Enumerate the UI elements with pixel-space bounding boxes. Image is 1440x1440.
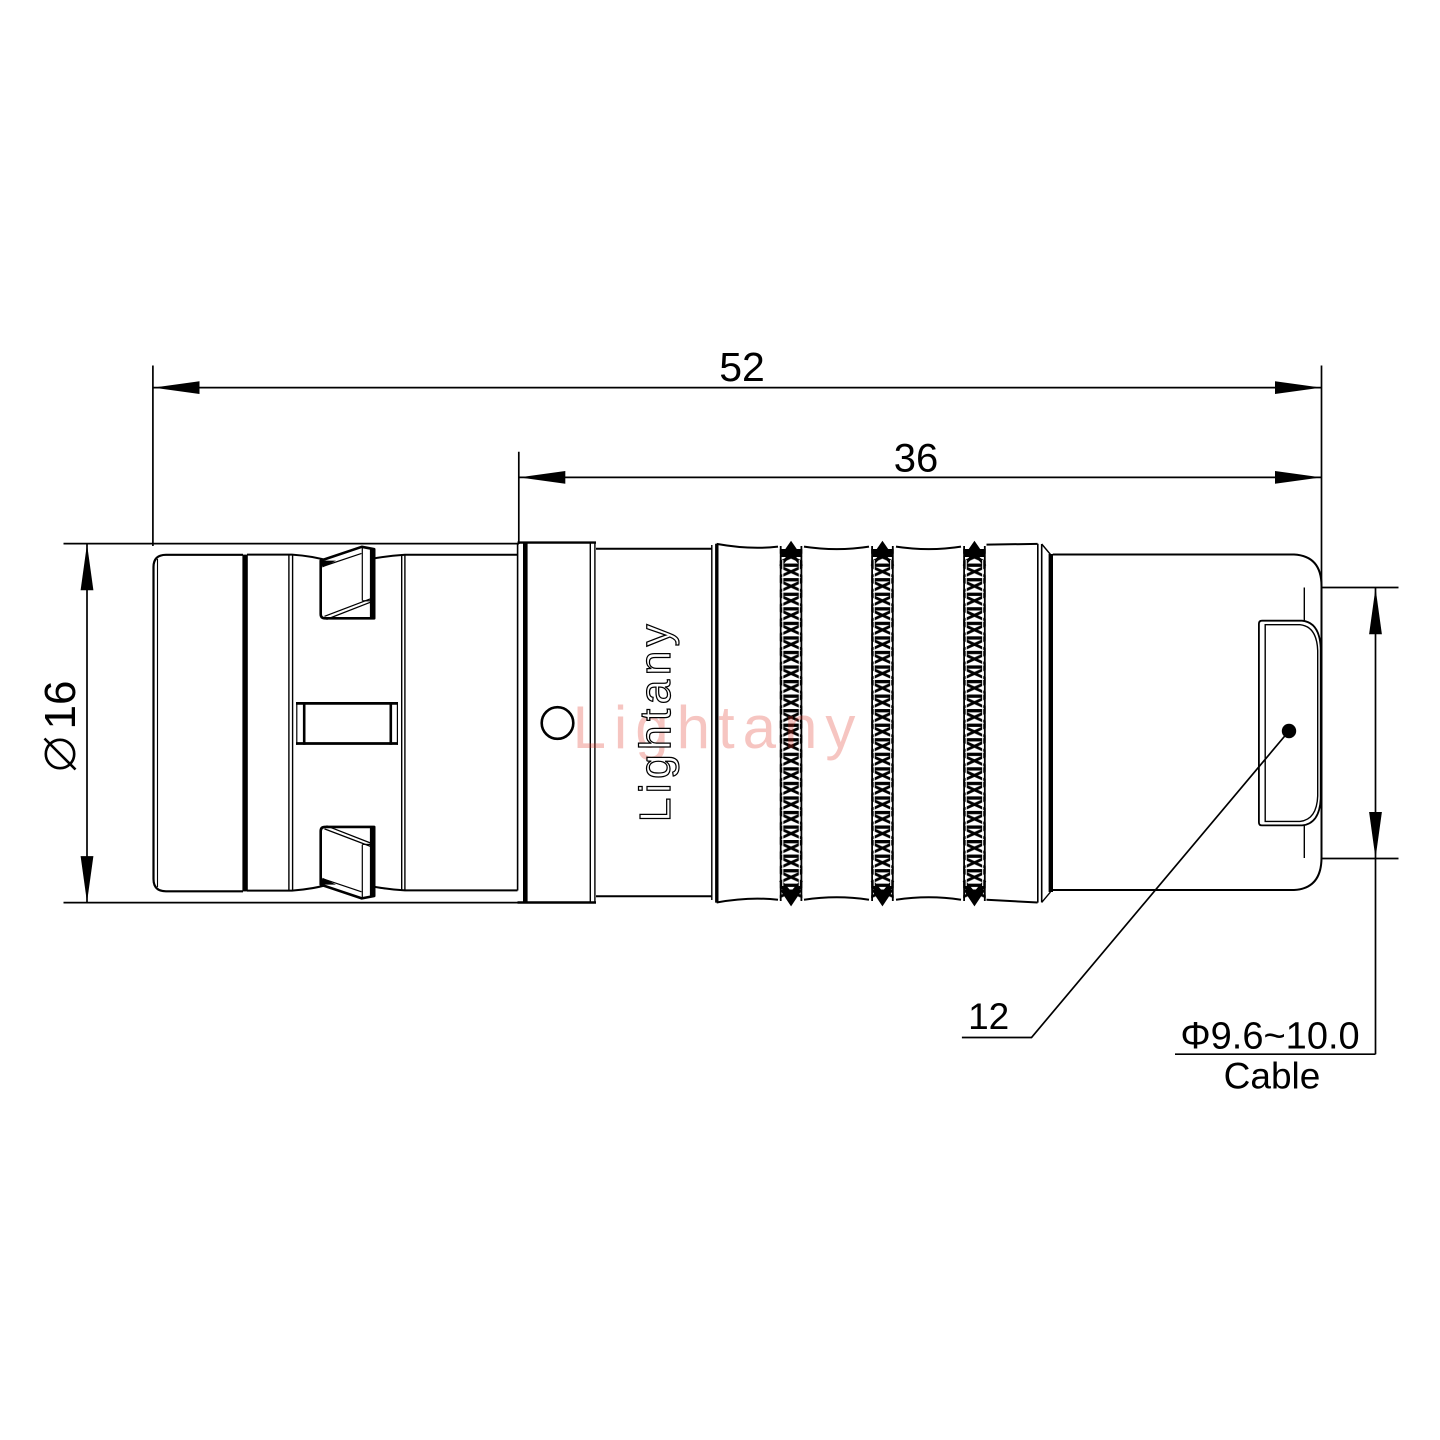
svg-text:52: 52 bbox=[719, 344, 765, 390]
svg-text:Cable: Cable bbox=[1224, 1055, 1321, 1096]
svg-text:Φ9.6~10.0: Φ9.6~10.0 bbox=[1180, 1015, 1359, 1057]
svg-text:36: 36 bbox=[894, 437, 939, 481]
svg-text:Lightany: Lightany bbox=[631, 620, 680, 822]
svg-text:16: 16 bbox=[36, 681, 85, 730]
svg-text:Lightany: Lightany bbox=[573, 694, 864, 761]
svg-text:12: 12 bbox=[968, 996, 1009, 1037]
